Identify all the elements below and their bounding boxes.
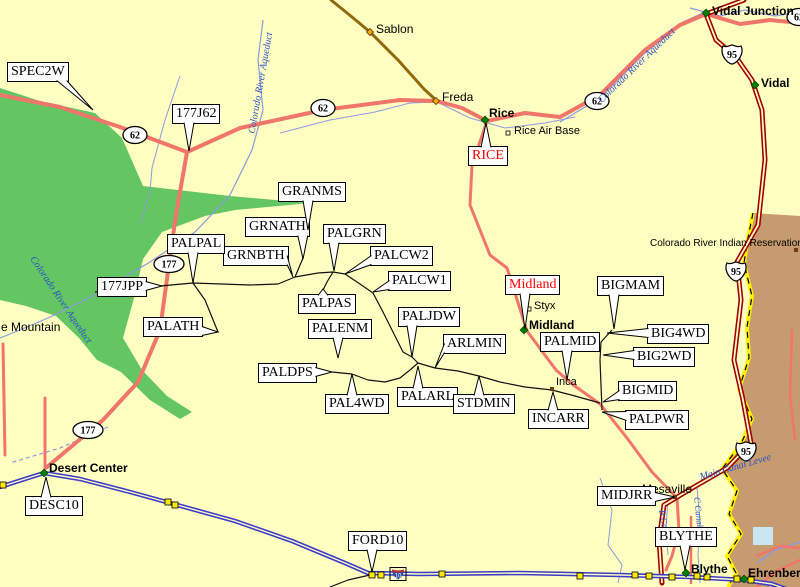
waypoint-callout-palpas[interactable]: PALPAS — [298, 294, 356, 314]
waypoint-callout-ford10[interactable]: FORD10 — [348, 531, 407, 551]
waypoint-callout-rice[interactable]: RICE — [468, 146, 508, 166]
waypoint-callout-bigmam[interactable]: BIGMAM — [597, 276, 664, 296]
waypoint-callout-incarr[interactable]: INCARR — [528, 409, 589, 429]
waypoint-callout-big2wd[interactable]: BIG2WD — [633, 347, 695, 367]
waypoint-callout-grnbth[interactable]: GRNBTH — [223, 246, 289, 266]
waypoint-callout-granms[interactable]: GRANMS — [278, 182, 346, 202]
waypoint-callout-177jpp[interactable]: 177JPP — [97, 277, 147, 297]
waypoint-callout-palpwr[interactable]: PALPWR — [625, 410, 689, 430]
waypoint-callout-stdmin[interactable]: STDMIN — [453, 394, 515, 414]
waypoint-callout-desc10[interactable]: DESC10 — [25, 496, 83, 516]
waypoint-callout-big4wd[interactable]: BIG4WD — [647, 324, 709, 344]
waypoint-callout-pal4wd[interactable]: PAL4WD — [325, 394, 389, 414]
waypoint-callout-arlmin[interactable]: ARLMIN — [443, 334, 506, 354]
waypoint-callout-midland[interactable]: Midland — [505, 275, 560, 295]
waypoint-callout-177j62[interactable]: 177J62 — [172, 104, 220, 124]
waypoint-callout-palmid[interactable]: PALMID — [540, 332, 600, 352]
waypoint-callouts-layer: SPEC2W177J62RICEGRANMSGRNATHGRNBTHPALPAL… — [0, 0, 800, 587]
waypoint-callout-grnath[interactable]: GRNATH — [245, 217, 310, 237]
waypoint-callout-bigmid[interactable]: BIGMID — [618, 381, 677, 401]
waypoint-callout-palath[interactable]: PALATH — [143, 317, 203, 337]
waypoint-callout-paldps[interactable]: PALDPS — [258, 363, 317, 383]
waypoint-callout-paljdw[interactable]: PALJDW — [398, 307, 460, 327]
waypoint-callout-palcw1[interactable]: PALCW1 — [388, 271, 451, 291]
waypoint-callout-palcw2[interactable]: PALCW2 — [370, 246, 433, 266]
waypoint-callout-blythe[interactable]: BLYTHE — [655, 527, 717, 547]
waypoint-callout-palenm[interactable]: PALENM — [308, 319, 372, 339]
waypoint-callout-midjrr[interactable]: MIDJRR — [597, 486, 656, 506]
waypoint-callout-palpal[interactable]: PALPAL — [167, 234, 225, 254]
topo-map-canvas[interactable]: 6262626217717795959510 Colorado River Aq… — [0, 0, 800, 587]
waypoint-callout-spec2w[interactable]: SPEC2W — [7, 62, 69, 82]
waypoint-callout-palgrn[interactable]: PALGRN — [323, 224, 386, 244]
waypoint-callout-palarl[interactable]: PALARL — [397, 387, 458, 407]
